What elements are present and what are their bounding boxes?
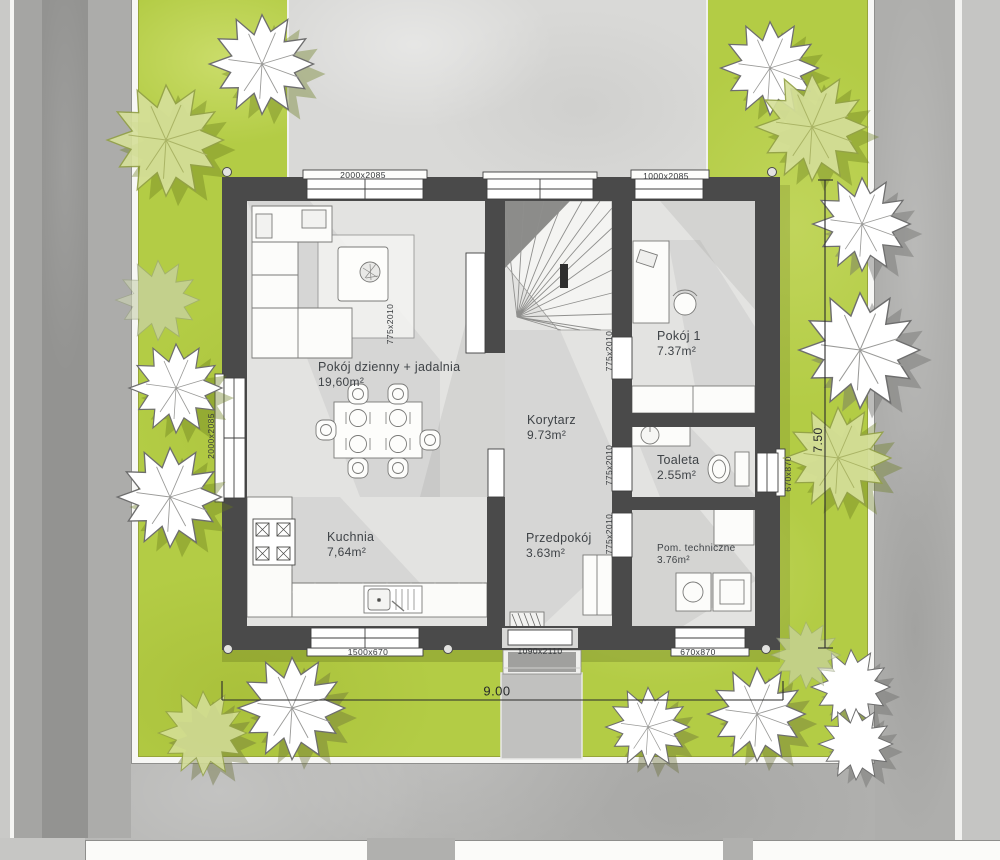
wardrobe: [632, 386, 755, 413]
dimension-width-label: 9.00: [483, 684, 510, 699]
hall-door-leaf: [488, 449, 504, 497]
room-label-toilet: Toaleta 2.55m²: [657, 453, 699, 483]
room-name: Pom. techniczne: [657, 543, 735, 554]
room-area: 2.55m²: [657, 468, 699, 483]
washing-machine: [676, 573, 711, 611]
tree-icon: [158, 691, 246, 776]
kitchen-sink: [364, 586, 422, 613]
label-door-room1: 775x2010: [604, 331, 614, 372]
room-label-living: Pokój dzienny + jadalnia 19,60m²: [318, 360, 460, 390]
room-area: 7,64m²: [327, 545, 374, 560]
room-label-tech: Pom. techniczne 3.76m²: [657, 543, 735, 567]
label-window-kitchen: 1500x670: [348, 647, 389, 657]
toilet-door-leaf: [612, 447, 632, 491]
room-label-corridor: Korytarz 9.73m²: [527, 413, 576, 443]
room-name: Pokój dzienny + jadalnia: [318, 360, 460, 374]
entry-path: [501, 650, 582, 759]
dimension-depth-label: 7.50: [811, 427, 825, 452]
dryer: [713, 573, 751, 611]
room-name: Pokój 1: [657, 329, 701, 343]
toilet-bowl: [708, 455, 730, 483]
label-window-left-living: 2000x2085: [206, 413, 216, 459]
stove: [253, 519, 295, 565]
room-area: 19,60m²: [318, 375, 460, 390]
toilet-tank: [735, 452, 749, 486]
room-name: Przedpokój: [526, 531, 592, 545]
window-right-toilet: [757, 453, 778, 492]
staircase: [505, 201, 612, 330]
desk-chair: [674, 293, 696, 315]
room-label-room1: Pokój 1 7.37m²: [657, 329, 701, 359]
label-window-top-room1: 1000x2085: [643, 171, 689, 181]
label-door-entry: 1090x2110: [517, 646, 562, 656]
dining-table: [334, 402, 422, 458]
room-area: 3.76m²: [657, 555, 735, 567]
wall-living-corridor: [485, 201, 505, 353]
entry-door-leaf: [508, 630, 572, 645]
house-plan-drawing: [0, 0, 1000, 860]
room-area: 9.73m²: [527, 428, 576, 443]
tech-door-leaf: [612, 513, 632, 557]
room-label-kitchen: Kuchnia 7,64m²: [327, 530, 374, 560]
label-window-top-living: 2000x2085: [340, 170, 386, 180]
label-window-right-toilet: 670x870: [783, 456, 793, 491]
room-name: Korytarz: [527, 413, 576, 427]
room-area: 3.63m²: [526, 546, 592, 561]
tree-icon: [116, 260, 200, 340]
floor-plan-canvas: Pokój dzienny + jadalnia 19,60m² Korytar…: [0, 0, 1000, 860]
living-door-leaf: [466, 253, 485, 353]
room-area: 7.37m²: [657, 344, 701, 359]
hall-wardrobe: [583, 555, 612, 615]
label-window-tech: 670x870: [680, 647, 715, 657]
label-door-tech: 775x2010: [604, 514, 614, 555]
room-label-hall: Przedpokój 3.63m²: [526, 531, 592, 561]
stair-newel-post: [560, 264, 568, 288]
room-name: Toaleta: [657, 453, 699, 467]
room-name: Kuchnia: [327, 530, 374, 544]
room1-door-leaf: [612, 337, 632, 379]
wall-kitchen-hall: [487, 497, 505, 628]
label-door-toilet: 775x2010: [604, 445, 614, 486]
label-door-living: 775x2010: [385, 304, 395, 345]
